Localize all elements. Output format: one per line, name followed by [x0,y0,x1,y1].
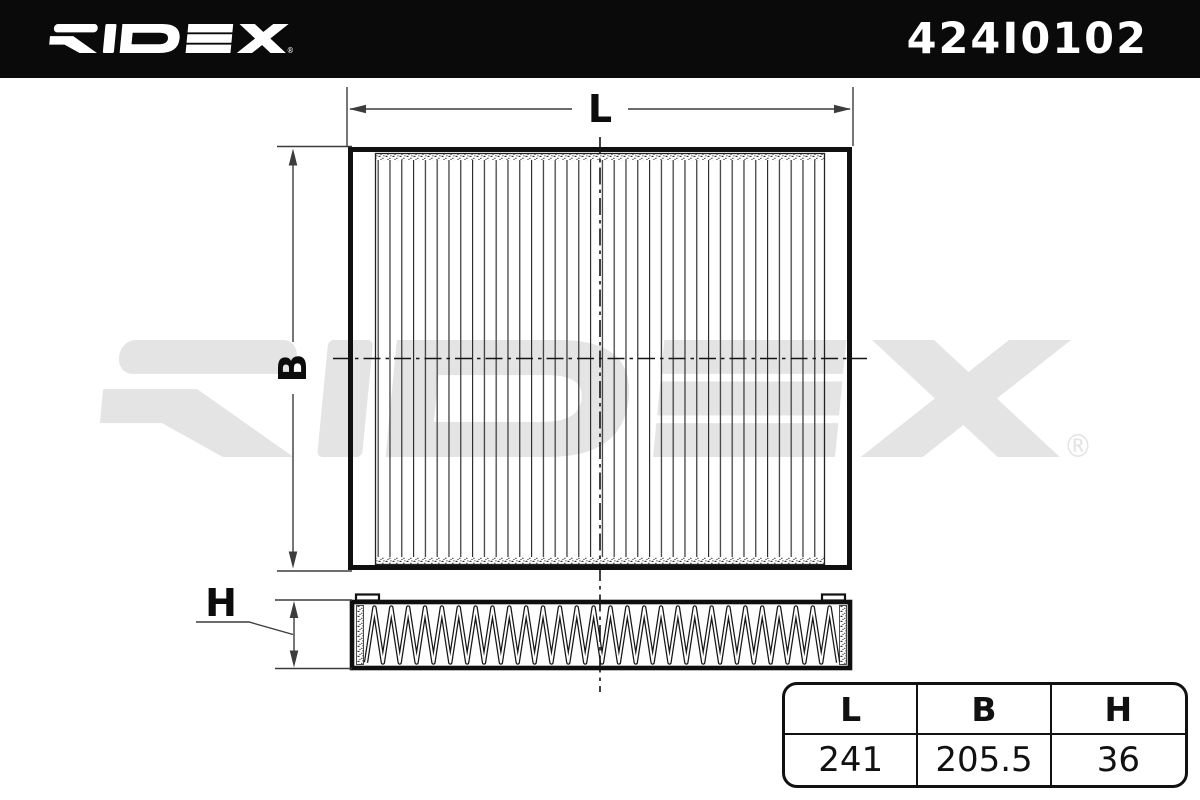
side-tab-right [822,595,845,601]
arrow-B-top [289,149,298,166]
arrow-H-bottom [290,651,299,668]
side-tab-left [356,595,379,601]
arrow-L-left [349,105,366,114]
dim-label-H: H [205,581,237,625]
media-edge-left [357,606,364,665]
table-value-H: 36 [1052,735,1185,785]
dim-label-L: L [588,87,612,131]
arrow-B-bottom [289,552,298,569]
dim-label-B: B [271,354,315,383]
table-value-B: 205.5 [918,735,1051,785]
arrow-H-top [290,601,299,618]
technical-drawing: L B H [0,0,1200,800]
side-view [352,595,850,669]
arrow-L-right [834,105,851,114]
dimensions-table: L B H 241 205.5 36 [782,682,1188,788]
table-header-L: L [785,685,918,735]
table-header-H: H [1052,685,1185,735]
table-value-L: 241 [785,735,918,785]
media-edge-right [840,606,847,665]
table-header-B: B [918,685,1051,735]
